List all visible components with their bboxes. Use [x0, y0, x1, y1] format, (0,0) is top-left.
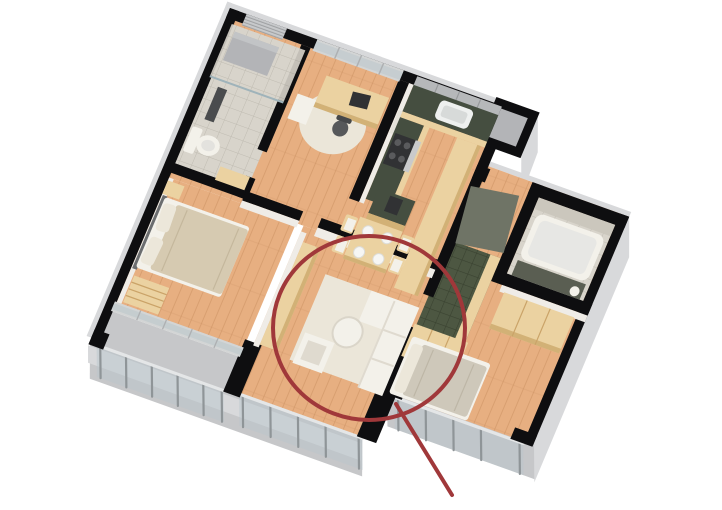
apartment-plan: [71, 1, 670, 510]
floor-plan-image: [0, 0, 722, 510]
floor-plan-svg: [0, 0, 722, 510]
